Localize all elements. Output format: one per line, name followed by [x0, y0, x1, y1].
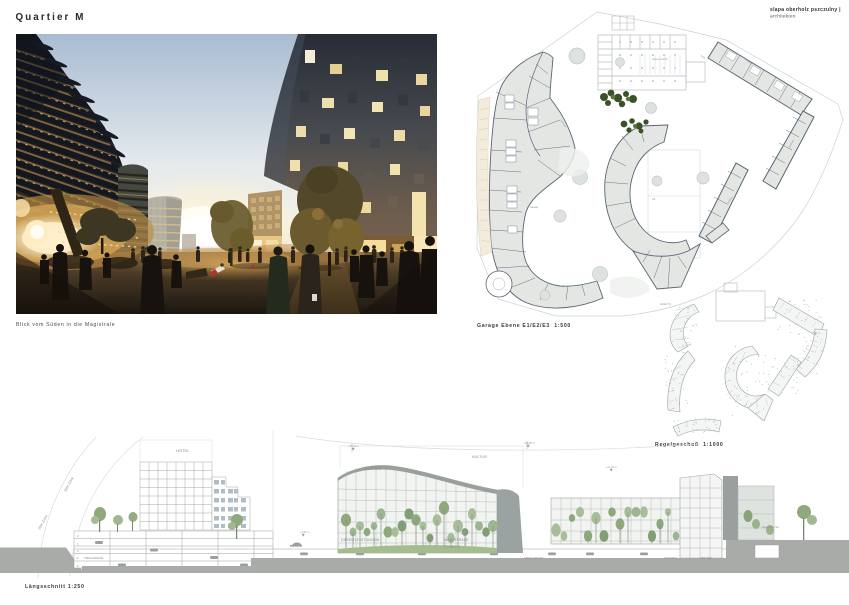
- svg-text:+4.20 m: +4.20 m: [580, 530, 589, 534]
- svg-text:TECHNIK: TECHNIK: [664, 556, 677, 560]
- svg-text:Blick vom Süden in die Magistr: Blick vom Süden in die Magistrale: [16, 322, 115, 328]
- svg-text:KULTUR: KULTUR: [472, 455, 487, 459]
- svg-text:TIEFGARAGE: TIEFGARAGE: [84, 556, 103, 560]
- svg-text:MAGISTRALE: MAGISTRALE: [444, 538, 469, 542]
- svg-text:+24.80 m: +24.80 m: [524, 441, 535, 445]
- svg-text:+3.60 m: +3.60 m: [300, 530, 309, 534]
- svg-text:Garage: Garage: [530, 206, 539, 209]
- svg-text:DIENSTLEISTUNGEN: DIENSTLEISTUNGEN: [341, 538, 379, 542]
- svg-text:+27.40 m: +27.40 m: [348, 444, 359, 448]
- svg-text:KELLER: KELLER: [700, 556, 712, 560]
- svg-text:architekten: architekten: [770, 14, 796, 20]
- svg-text:Lift: Lift: [652, 198, 656, 201]
- svg-text:-2: -2: [76, 564, 79, 568]
- svg-text:Zufahrt Tg.: Zufahrt Tg.: [660, 303, 672, 306]
- svg-text:Supermarkt: Supermarkt: [652, 57, 668, 61]
- svg-text:Flughafen Str.: Flughafen Str.: [762, 525, 780, 529]
- svg-text:-1: -1: [76, 556, 79, 560]
- svg-text:Quartier M: Quartier M: [16, 12, 86, 23]
- svg-text:+0.00 m: +0.00 m: [460, 529, 469, 533]
- svg-text:slapa oberholz pszczulny |: slapa oberholz pszczulny |: [770, 7, 841, 13]
- svg-text:TIEFGARAGE: TIEFGARAGE: [524, 556, 543, 560]
- svg-text:+21.20 m: +21.20 m: [606, 465, 617, 469]
- svg-text:Garage Ebene E1/E2/E3 1:500: Garage Ebene E1/E2/E3 1:500: [477, 323, 571, 329]
- svg-text:WOHNEN: WOHNEN: [364, 467, 382, 471]
- svg-text:HOTEL: HOTEL: [176, 448, 190, 453]
- svg-text:FITNESS: FITNESS: [444, 545, 461, 549]
- svg-text:Längsschnitt 1:250: Längsschnitt 1:250: [25, 584, 85, 590]
